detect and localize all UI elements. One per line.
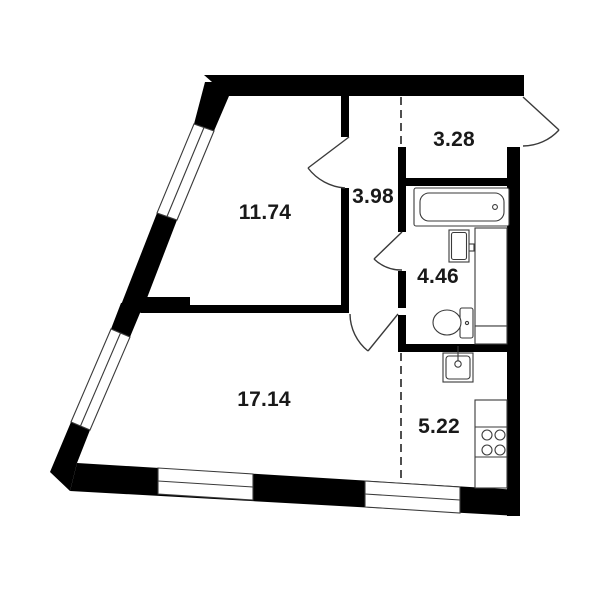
room-area-label-bedroom: 11.74 [239, 201, 291, 225]
wall-left-upper-a [194, 82, 229, 131]
wall-divider-thick [141, 297, 190, 313]
floor-plan-drawing [0, 0, 600, 600]
wall-bath-top [398, 178, 509, 186]
window-bottom-living [158, 468, 253, 500]
room-area-label-living-room: 17.14 [237, 388, 291, 412]
wall-top [204, 75, 524, 96]
wall-bath-bottom [398, 344, 510, 352]
washbasin-icon [449, 230, 474, 262]
wall-corridor-left-upper [341, 96, 349, 137]
window-lower-left [71, 329, 130, 430]
window-bottom-kitchen [365, 481, 460, 513]
wall-corridor-left-lower [341, 188, 349, 313]
bathroom-door-swing [374, 232, 402, 270]
wall-bath-left-mid [398, 271, 406, 308]
fixtures [414, 188, 509, 488]
wall-divider-thin [190, 305, 343, 313]
room-area-label-hall: 3.98 [352, 185, 394, 209]
room-area-label-kitchen: 5.22 [418, 415, 460, 439]
wall-bath-left-upper [398, 147, 406, 232]
bedroom-door-swing [308, 137, 349, 188]
floor-plan: 11.74 3.98 3.28 4.46 17.14 5.22 [0, 0, 600, 600]
room-area-label-bathroom: 4.46 [417, 265, 459, 289]
stove-icon [475, 400, 507, 488]
living-room-door-swing [350, 314, 398, 351]
room-area-label-entry: 3.28 [433, 128, 475, 152]
bathroom-cabinet-icon [475, 228, 507, 344]
window-upper-left [157, 124, 214, 220]
bathtub-icon [414, 188, 509, 226]
toilet-icon [433, 308, 473, 338]
entrance-door-swing [523, 97, 559, 146]
